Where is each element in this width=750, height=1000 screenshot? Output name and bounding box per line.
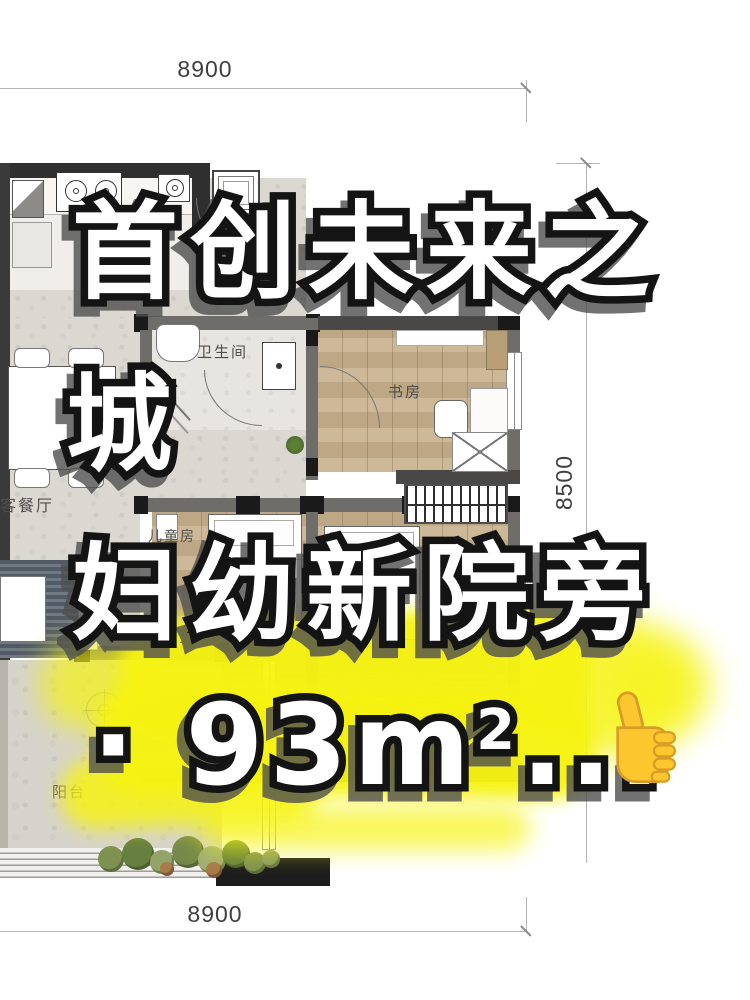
headline-line2-fill: 城 bbox=[66, 372, 172, 478]
headline-line1-fill: 首创未来之 bbox=[72, 200, 662, 306]
headline-line4-fill: · 93m2... bbox=[92, 690, 667, 802]
highlighter-marks bbox=[0, 0, 750, 1000]
poster-canvas: 卫生间 书房 客餐厅 儿童房 阳台 8900 8900 8500 首创未来之 首… bbox=[0, 0, 750, 1000]
thumbs-up-icon bbox=[588, 686, 698, 796]
headline-line3-fill: 妇幼新院旁 bbox=[72, 542, 657, 648]
